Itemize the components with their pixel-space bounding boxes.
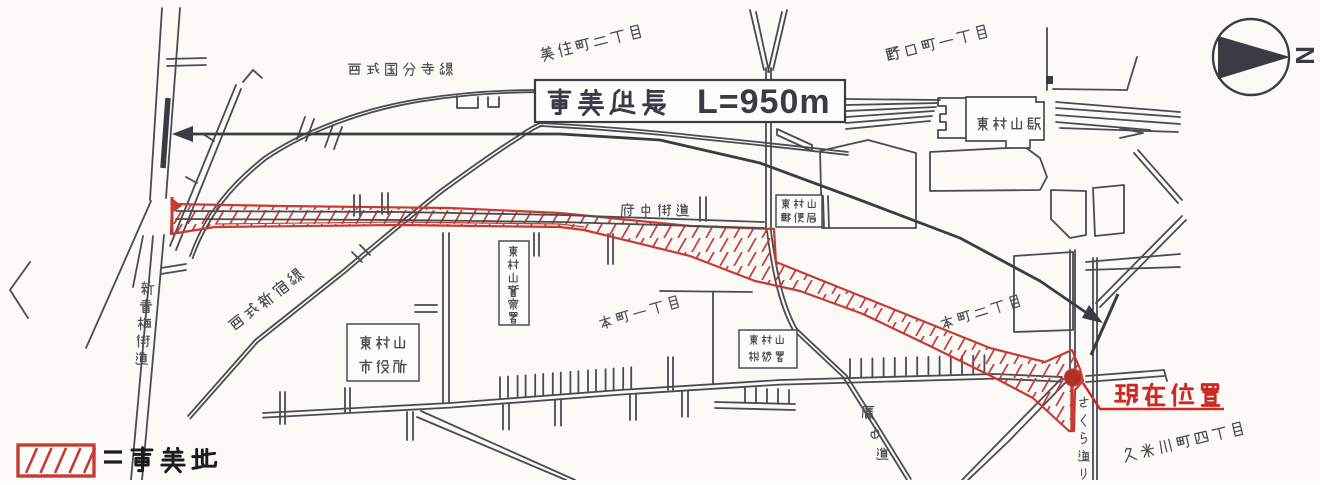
svg-text:L=950m: L=950m: [697, 83, 831, 121]
svg-text:N: N: [1290, 46, 1320, 65]
